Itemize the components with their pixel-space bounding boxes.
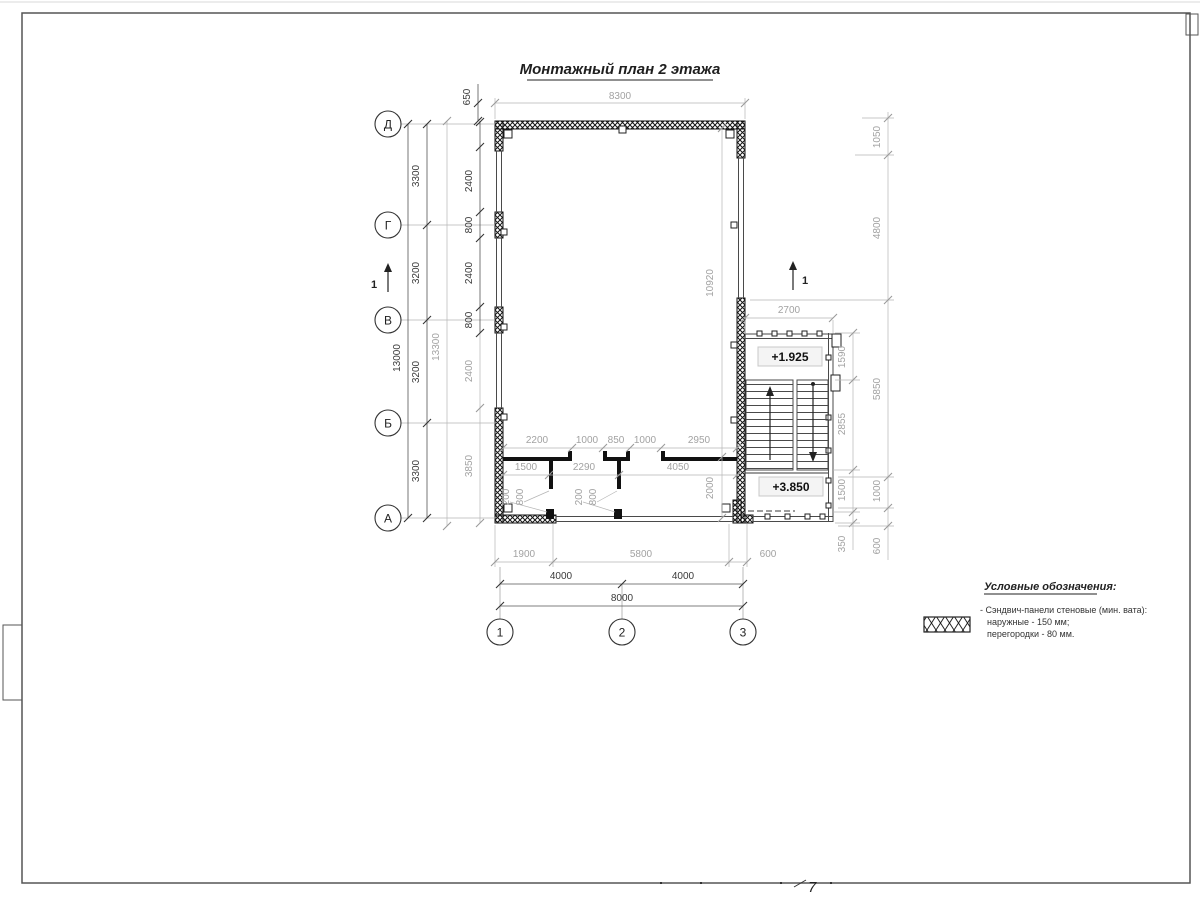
dim-panel-6: 3850 xyxy=(464,454,475,477)
dim-5800: 5800 xyxy=(630,549,653,560)
dim-door-800b: 800 xyxy=(588,488,599,505)
section-label-right: 1 xyxy=(802,275,808,287)
stair-window-marker xyxy=(831,375,840,391)
section-arrow-left xyxy=(384,263,392,272)
dim-2950: 2950 xyxy=(688,435,711,446)
elevation-lower: +3.850 xyxy=(772,480,809,494)
dim-600-bottom: 600 xyxy=(760,549,777,560)
dim-13000: 13000 xyxy=(392,344,403,372)
sandwich-panel-symbol xyxy=(924,617,970,632)
dim-1000b: 1000 xyxy=(634,435,657,446)
dim-panel-3: 2400 xyxy=(464,261,475,284)
dim-2000: 2000 xyxy=(705,476,716,499)
dim-8000: 8000 xyxy=(611,593,634,604)
axis-label-2: 2 xyxy=(619,626,626,640)
dim-4050: 4050 xyxy=(667,462,690,473)
section-marks: 1 1 xyxy=(371,261,808,292)
stair-door-jamb xyxy=(832,334,841,347)
dim-2855: 2855 xyxy=(837,412,848,435)
floor-plan-drawing: 7 Монтажный план 2 этажа xyxy=(0,0,1200,900)
dim-2700: 2700 xyxy=(778,305,801,316)
legend-line-3: перегородки - 80 мм. xyxy=(987,629,1074,639)
dim-13300: 13300 xyxy=(431,333,442,361)
dim-span-4: 3300 xyxy=(411,459,422,482)
dim-span-2: 3200 xyxy=(411,261,422,284)
dim-1000-right: 1000 xyxy=(872,479,883,502)
section-arrow-right xyxy=(789,261,797,270)
dim-panel-2: 800 xyxy=(464,216,475,233)
dim-8300: 8300 xyxy=(609,91,632,102)
dim-1900: 1900 xyxy=(513,549,536,560)
dim-1590: 1590 xyxy=(837,345,848,368)
dim-4000b: 4000 xyxy=(672,571,695,582)
section-label-left: 1 xyxy=(371,279,377,291)
dim-600-right: 600 xyxy=(872,537,883,554)
dim-panel-1: 2400 xyxy=(464,169,475,192)
dims-interior: 2200 1000 850 1000 2950 1500 2290 4050 2… xyxy=(499,435,741,512)
axis-grid-left: Д Г В Б А xyxy=(375,111,495,531)
dim-650: 650 xyxy=(462,88,473,105)
dim-door-800a: 800 xyxy=(515,488,526,505)
axis-label-d: Д xyxy=(384,118,392,132)
legend-title: Условные обозначения: xyxy=(984,581,1117,593)
dim-panel-4: 800 xyxy=(464,311,475,328)
dim-door-200a: 200 xyxy=(501,488,512,505)
axis-label-a: А xyxy=(384,512,392,526)
dim-1050: 1050 xyxy=(872,125,883,148)
dim-2200: 2200 xyxy=(526,435,549,446)
sheet-frame xyxy=(0,2,1200,883)
axis-label-1: 1 xyxy=(497,626,504,640)
dim-1500-stair: 1500 xyxy=(837,478,848,501)
dim-panel-5: 2400 xyxy=(464,359,475,382)
dim-1000a: 1000 xyxy=(576,435,599,446)
legend: Условные обозначения: - Сэндвич-панели с… xyxy=(924,581,1147,639)
dims-bottom: 1900 5800 600 4000 4000 8000 xyxy=(491,524,777,610)
axis-label-b: Б xyxy=(384,417,392,431)
axis-label-v: В xyxy=(384,314,392,328)
dim-5850: 5850 xyxy=(872,377,883,400)
interior-partitions xyxy=(503,451,737,519)
dim-span-3: 3200 xyxy=(411,360,422,383)
dim-door-200b: 200 xyxy=(574,488,585,505)
dim-span-1: 3300 xyxy=(411,164,422,187)
drawing-title: Монтажный план 2 этажа xyxy=(520,61,721,80)
dim-2290: 2290 xyxy=(573,462,596,473)
axis-label-g: Г xyxy=(385,219,392,233)
elevation-upper: +1.925 xyxy=(771,350,808,364)
legend-line-1: - Сэндвич-панели стеновые (мин. вата): xyxy=(980,605,1147,615)
dim-350: 350 xyxy=(837,535,848,552)
dim-850: 850 xyxy=(608,435,625,446)
legend-line-2: наружные - 150 мм; xyxy=(987,617,1069,627)
dim-1500-room: 1500 xyxy=(515,462,538,473)
sheet-bottom-marks: 7 xyxy=(660,879,832,896)
drawing-sheet: 7 Монтажный план 2 этажа xyxy=(0,0,1200,900)
dim-4800: 4800 xyxy=(872,216,883,239)
frame-stamp-box xyxy=(3,625,22,700)
dim-10920: 10920 xyxy=(705,269,716,297)
dims-top: 8300 650 xyxy=(462,84,749,125)
axis-label-3: 3 xyxy=(740,626,747,640)
dim-4000a: 4000 xyxy=(550,571,573,582)
page-title: Монтажный план 2 этажа xyxy=(520,61,721,78)
page-mark: 7 xyxy=(808,879,817,896)
dims-left: 13000 3300 3200 3200 3300 13300 2400 800… xyxy=(392,117,484,530)
